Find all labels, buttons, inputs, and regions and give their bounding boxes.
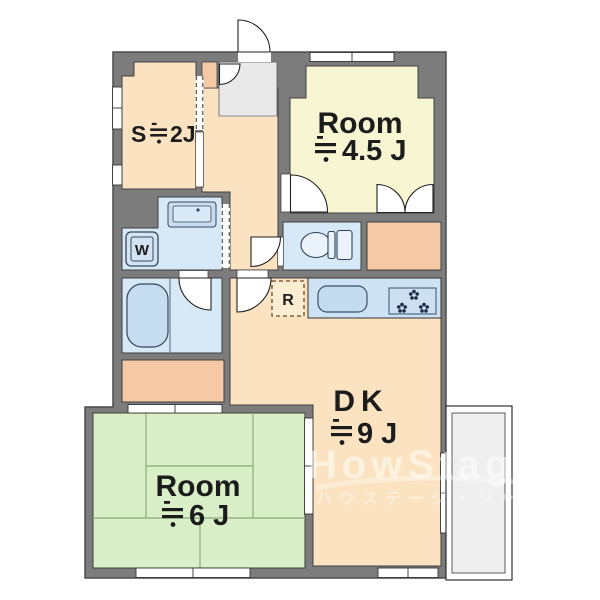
window-service-left-2 xyxy=(113,165,123,185)
washroom-dashed-opening xyxy=(222,204,231,268)
closet-lower xyxy=(122,360,224,402)
floor-plan-page: R W xyxy=(0,0,600,600)
western-room-size: 4.5 J xyxy=(342,135,407,167)
refrigerator-label: R xyxy=(282,292,294,309)
tatami-room-size: 6 J xyxy=(189,500,229,532)
service-room-label: S xyxy=(131,121,146,147)
tatami-room-label: Room xyxy=(156,470,241,503)
service-room-opening xyxy=(196,132,204,187)
bathroom-opening xyxy=(179,271,208,279)
watermark-kana: ハウステージ・ジャパン xyxy=(316,490,569,508)
shoe-cabinet xyxy=(202,62,217,88)
floor-plan-svg: R W xyxy=(0,0,600,600)
western-room-opening xyxy=(281,174,291,212)
entry-door-arc-icon xyxy=(238,20,270,52)
closet-upper xyxy=(367,222,441,270)
dk-label: DK xyxy=(333,385,388,418)
vanity-icon xyxy=(168,202,216,227)
bathtub-icon xyxy=(127,284,168,347)
dk-opening xyxy=(237,270,268,278)
service-room-size: 2J xyxy=(170,121,196,147)
service-room-dashed-opening xyxy=(196,76,204,130)
washing-machine-label: W xyxy=(135,242,150,259)
watermark: HowStage ハウステージ・ジャパン xyxy=(308,443,569,508)
entry-opening xyxy=(238,52,271,62)
kitchen-sink-icon xyxy=(318,286,367,312)
